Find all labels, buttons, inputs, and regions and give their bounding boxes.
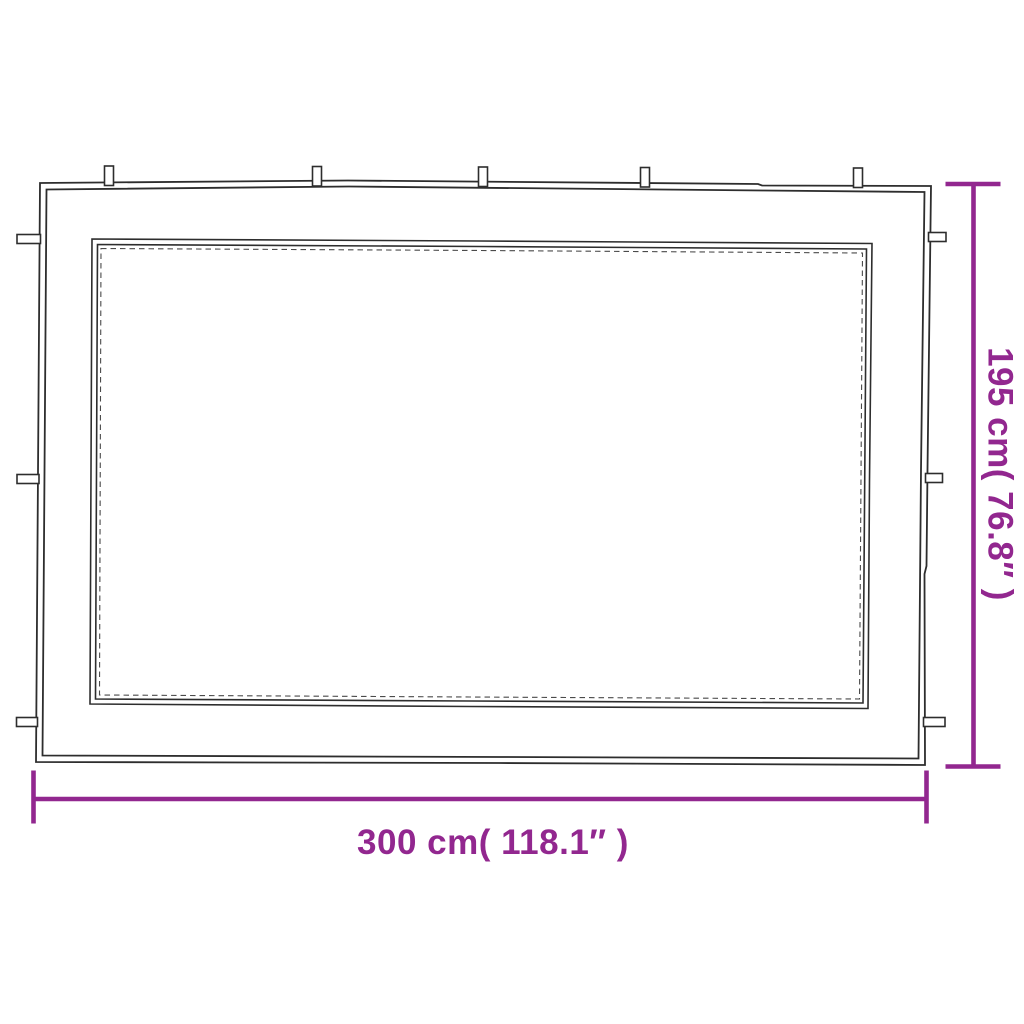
- height-dimension-label: 195 cm( 76.8″ ): [981, 347, 1020, 601]
- product-dimension-diagram: 300 cm( 118.1″ ) 195 cm( 76.8″ ): [0, 0, 1024, 1024]
- hanging-loop: [641, 168, 650, 188]
- side-tab: [929, 233, 947, 242]
- width-dimension-label: 300 cm( 118.1″ ): [357, 823, 629, 862]
- hanging-loop: [854, 168, 863, 188]
- hanging-loop: [105, 166, 114, 186]
- side-tab: [17, 235, 41, 244]
- side-tab: [17, 475, 39, 484]
- sidewall-outer-outline: [36, 181, 931, 766]
- side-tab: [926, 474, 943, 483]
- hanging-loop: [313, 167, 322, 187]
- side-tab: [17, 718, 38, 727]
- side-tab: [924, 718, 946, 727]
- hanging-loop: [479, 167, 488, 187]
- sidewall-diagram-canvas: 300 cm( 118.1″ ) 195 cm( 76.8″ ): [0, 0, 1024, 1024]
- sidewall-panel-group: [36, 181, 931, 766]
